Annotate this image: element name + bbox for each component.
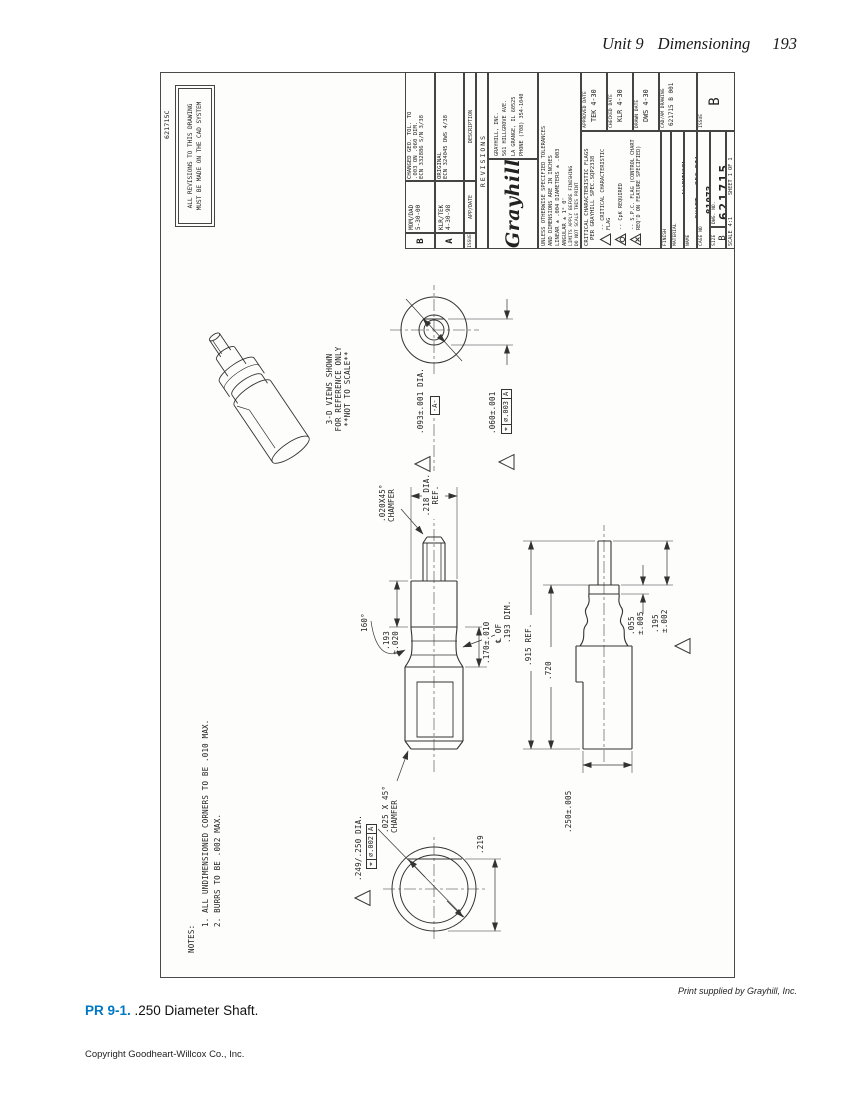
rev-description: CHANGED GEO. TOL. TO .003 ON .060 DIM. E…: [405, 72, 435, 181]
dim-195: .195 ±.002: [651, 609, 669, 633]
copyright-line: Copyright Goodheart-Willcox Co., Inc.: [85, 1049, 244, 1060]
company-logo-cell: Grayhill: [488, 159, 538, 249]
checked-value: KLR 4-30: [616, 73, 624, 122]
issue-label: ISSUE: [699, 73, 705, 128]
dim-chamfer-025: .025 X 45° CHAMFER: [381, 786, 399, 833]
material-cell: MATERIAL ALUMINUM: [671, 131, 684, 249]
checked-label: CHECKED DATE: [609, 73, 615, 128]
flag-row: -- CRITICAL CHARACTERISTIC FLAG: [599, 134, 612, 246]
page-number: 193: [772, 34, 797, 53]
finish-cell: FINISH: [661, 131, 671, 249]
fcf-tolerance: ∅.002: [367, 833, 376, 859]
centerline-note: ℄ OF .193 DIM.: [494, 601, 512, 643]
cadam-value: 621715 B 001: [668, 73, 675, 126]
flags-block: CRITICAL CHARACTERISTIC FLAGS PER GRAYHI…: [581, 131, 661, 249]
title-block: B MOM/DAD 5-30-00 CHANGED GEO. TOL. TO .…: [405, 72, 735, 249]
drawn-value: DWS 4-30: [642, 73, 650, 122]
name-label: NAME: [686, 235, 692, 246]
company-city: LA GRANGE, IL 60525: [510, 75, 518, 156]
fcf-datum: A: [502, 390, 511, 398]
approved-label: APPROVED DATE: [583, 73, 589, 128]
fcf-datum: A: [367, 825, 376, 833]
drawn-label: DRAWN DATE: [635, 73, 641, 128]
company-phone: PHONE (708) 354-1040: [518, 75, 526, 156]
tol-line: AND DIMENSIONS ARE IN INCHES: [548, 75, 555, 246]
critical-flag-icon: [497, 453, 516, 471]
corner-mark: 621715C: [164, 110, 172, 139]
dim-dia-218: .218 DIA. REF.: [422, 471, 440, 519]
textbook-page: { "colors": {"accent": "#0077c4", "line"…: [0, 0, 849, 1100]
scale-value: 4:1: [728, 217, 734, 226]
tol-line: UNLESS OTHERWISE SPECIFIED TOLERANCES: [541, 75, 548, 246]
dim-250: .250±.005: [564, 791, 573, 833]
dim-055: .055 ±.005: [627, 611, 645, 635]
spc-flag-icon: [629, 233, 642, 246]
dim-060: .060±.001: [488, 392, 497, 434]
cage-label: CAGE NO: [699, 226, 705, 246]
issue-cell: ISSUE B: [697, 72, 735, 131]
dim-dia-249: .249/.250 DIA.: [354, 815, 363, 881]
chapter-title: Dimensioning: [658, 34, 751, 53]
note-2: 2. BURRS TO BE .002 MAX.: [213, 814, 222, 927]
sheet-label: SHEET 1 OF 1: [728, 158, 734, 195]
isometric-view: [195, 323, 313, 468]
cad-note-box: ALL REVISIONS TO THIS DRAWING MUST BE MA…: [175, 85, 215, 227]
print-credit: Print supplied by Grayhill, Inc.: [678, 986, 797, 996]
rev-app-date: MOM/DAD 5-30-00: [405, 181, 435, 233]
dim-angle-160: 160°: [360, 612, 369, 633]
critical-flag-icon: [353, 889, 372, 907]
material-label: MATERIAL: [673, 223, 679, 246]
dim-219: .219: [476, 834, 485, 855]
finish-label: FINISH: [663, 132, 669, 246]
fcf-060: ⌖∅.003A: [501, 389, 512, 434]
flag-row: -- CpK REQUIRED: [614, 134, 627, 246]
dim-chamfer-020: .020X45° CHAMFER: [378, 484, 396, 522]
size-value: B: [718, 228, 726, 248]
dim-170: .170±.010: [482, 621, 491, 665]
tol-line: LINEAR ± .004 DIAMETERS ± .003: [555, 75, 562, 246]
rev-col-issue: ISSUE: [464, 233, 476, 249]
issue-value: B: [707, 73, 723, 130]
flag-row: -- S.P.C. FLAG (CONTROL CHART REQ'D ON F…: [629, 134, 642, 246]
cpk-flag-icon: [614, 233, 627, 246]
engineering-print: NOTES: 1. ALL UNDIMENSIONED CORNERS TO B…: [160, 72, 735, 978]
drawn-cell: DRAWN DATE DWS 4-30: [633, 72, 659, 131]
position-symbol: ⌖: [367, 859, 376, 868]
dim-915: .915 REF.: [524, 623, 533, 667]
flag-label: -- CRITICAL CHARACTERISTIC FLAG: [600, 134, 612, 230]
rev-issue: A: [435, 233, 464, 249]
page-header: Unit 9Dimensioning193: [602, 34, 797, 54]
rev-description: ORIGINAL ECN 324045 DWS 4/38: [435, 72, 464, 181]
grayhill-logo: Grayhill: [502, 159, 524, 248]
dwg-cell: DWG. NO. 621715: [710, 131, 726, 227]
name-cell: NAME SHAFT, .250 DIA.: [684, 131, 697, 249]
critical-flag-icon: [599, 233, 612, 246]
rev-col-app: APP/DATE: [464, 181, 476, 233]
revisions-caption: REVISIONS: [476, 72, 488, 249]
tol-line: ANGULAR ± 1° 0': [562, 75, 569, 246]
figure-title: .250 Diameter Shaft.: [131, 1003, 259, 1018]
figure-caption: PR 9-1. .250 Diameter Shaft.: [85, 1003, 258, 1018]
cage-cell: CAGE NO 81073: [697, 131, 710, 249]
dim-720: .720: [544, 660, 553, 681]
approved-value: TEK 4-30: [590, 73, 598, 122]
fcf-249: ⌖∅.002A: [366, 824, 377, 869]
cadam-label: CAD/AM DRAWING: [661, 73, 667, 128]
cad-note: ALL REVISIONS TO THIS DRAWING MUST BE MA…: [186, 102, 204, 210]
note-1: 1. ALL UNDIMENSIONED CORNERS TO BE .010 …: [201, 720, 210, 927]
scale-label: SCALE: [728, 230, 734, 246]
approved-cell: APPROVED DATE TEK 4-30: [581, 72, 607, 131]
dim-dia-093: .093±.001 DIA.: [416, 368, 425, 434]
dwg-number: 621715: [716, 132, 726, 220]
fcf-tolerance: ∅.003: [502, 398, 511, 424]
flag-label: -- S.P.C. FLAG (CONTROL CHART REQ'D ON F…: [630, 139, 642, 230]
flags-subtitle: PER GRAYHILL SPEC.SQP2338: [590, 134, 596, 240]
scale-cell: SCALE 4:1 SHEET 1 OF 1: [726, 131, 735, 249]
rev-col-desc: DESCRIPTION: [464, 72, 476, 181]
company-address: GRAYHILL, INC. 561 HILLGROVE AVE. LA GRA…: [488, 72, 538, 159]
rev-issue: B: [405, 233, 435, 249]
figure-label: PR 9-1.: [85, 1003, 131, 1018]
unit-label: Unit 9: [602, 34, 644, 53]
critical-flag-icon: [413, 455, 432, 473]
notes-title: NOTES:: [187, 925, 196, 953]
dim-193: .193 ±.020: [382, 631, 400, 667]
company-street: 561 HILLGROVE AVE.: [501, 75, 509, 156]
rev-app-date: KLR/TEK 4-30-98: [435, 181, 464, 233]
company-name: GRAYHILL, INC.: [493, 75, 501, 156]
flag-label: -- CpK REQUIRED: [618, 183, 624, 230]
checked-cell: CHECKED DATE KLR 4-30: [607, 72, 633, 131]
cadam-cell: CAD/AM DRAWING 621715 B 001: [659, 72, 697, 131]
critical-flag-icon: [673, 637, 692, 655]
datum-a: -A-: [430, 396, 440, 415]
drawing-landscape: NOTES: 1. ALL UNDIMENSIONED CORNERS TO B…: [160, 72, 735, 978]
size-cell: SIZE B: [710, 227, 726, 249]
tolerance-block: UNLESS OTHERWISE SPECIFIED TOLERANCES AN…: [538, 72, 581, 249]
reference-note: 3-D VIEWS SHOWN FOR REFERENCE ONLY **NOT…: [325, 328, 352, 450]
position-symbol: ⌖: [502, 424, 511, 433]
